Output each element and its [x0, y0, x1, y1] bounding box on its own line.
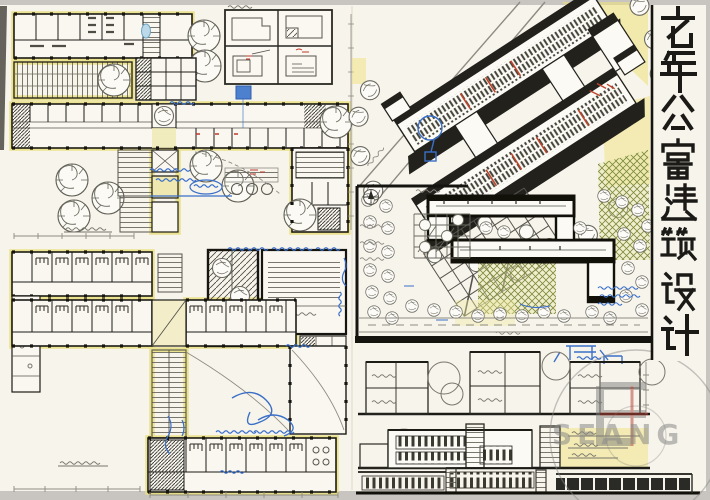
middle-wing — [12, 104, 352, 148]
tree-icon — [56, 164, 88, 196]
frame-band — [355, 336, 700, 343]
design-board-scan: 老年公寓建筑设计 — [0, 0, 710, 500]
tree-icon — [155, 107, 174, 126]
service-cells — [152, 150, 178, 232]
tree-icon — [58, 200, 90, 232]
title-glyph-yu — [663, 140, 693, 178]
design-board-photo: 老年公寓建筑设计 — [0, 0, 710, 500]
stair-run — [120, 196, 152, 232]
bedroom-wing — [186, 300, 296, 346]
title-strip — [652, 5, 703, 361]
stair-run — [158, 254, 182, 292]
stair-tower — [446, 468, 456, 492]
bedroom-wing — [148, 438, 336, 492]
stair-core — [150, 440, 184, 490]
tree-icon — [190, 150, 222, 182]
tree-icon — [284, 199, 316, 231]
bedroom-wing — [12, 252, 152, 296]
tree-icon — [320, 106, 352, 138]
stair-run — [118, 150, 152, 196]
right-block — [290, 346, 346, 434]
stair-tower — [466, 424, 484, 468]
right-wing — [284, 148, 348, 232]
north-arrow — [364, 190, 379, 205]
tree-icon — [188, 20, 220, 52]
watermark-letters: SEANG — [552, 418, 684, 451]
tree-icon — [98, 64, 130, 96]
blue-marker-square — [236, 86, 251, 99]
bedroom-wing — [12, 300, 152, 346]
entrance-core — [136, 58, 196, 100]
pool-symbol — [142, 24, 151, 38]
tree-icon — [213, 259, 232, 278]
stair-tower — [536, 470, 546, 492]
